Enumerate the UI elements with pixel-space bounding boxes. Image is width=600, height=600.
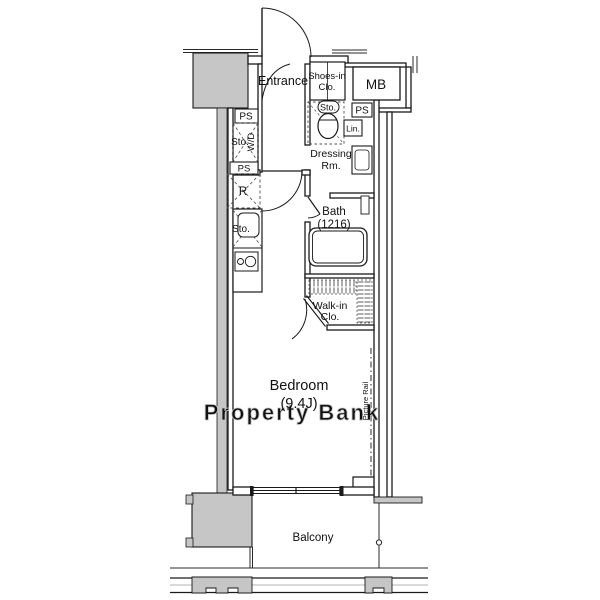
label-entrance: Entrance bbox=[258, 74, 308, 88]
hanger-pipe-top bbox=[309, 280, 356, 294]
label-picture-rail: Picture Rail bbox=[361, 382, 370, 421]
pillar-bump-2 bbox=[186, 538, 193, 547]
wall-hall-door-right bbox=[302, 170, 310, 175]
toilet-icon bbox=[318, 114, 338, 139]
label-walkin-2: Clo. bbox=[321, 311, 340, 323]
label-refrigerator: R bbox=[239, 186, 247, 198]
balcony-side-wall bbox=[374, 497, 422, 503]
structure-pillars bbox=[186, 53, 252, 547]
pillar-top-left bbox=[193, 53, 248, 108]
bath-door-arc bbox=[308, 214, 320, 218]
pillar-bottom-left bbox=[192, 493, 252, 547]
hall-door-arc bbox=[262, 171, 302, 211]
wall-entrance-left-jamb bbox=[248, 56, 262, 64]
wall-closet-bottom bbox=[327, 325, 374, 330]
stove-icon bbox=[235, 252, 258, 271]
bath-door-leaf bbox=[308, 197, 320, 214]
label-balcony: Balcony bbox=[293, 532, 334, 544]
label-linen: Lin. bbox=[346, 124, 360, 134]
pillar-bump-1 bbox=[186, 495, 193, 504]
label-ps-right: PS bbox=[355, 106, 369, 117]
wall-bedroom-notch bbox=[353, 477, 374, 487]
wall-bath-closet bbox=[305, 274, 374, 278]
railing-block-right bbox=[365, 577, 392, 593]
label-ps-mid-left: PS bbox=[238, 164, 251, 175]
label-ps-top-left: PS bbox=[239, 112, 253, 123]
shaft-wall-left bbox=[217, 108, 227, 493]
label-dressing-2: Rm. bbox=[321, 160, 340, 172]
label-storage-kitchen: Sto. bbox=[232, 224, 250, 235]
bathtub-icon bbox=[309, 228, 367, 266]
label-bedroom-1: Bedroom bbox=[270, 378, 329, 394]
label-bath-1: Bath bbox=[322, 206, 346, 218]
balcony-window bbox=[250, 486, 344, 496]
doors bbox=[262, 8, 320, 218]
label-shoes-in-2: Clo. bbox=[319, 82, 336, 93]
label-shoes-in-1: Shoes-in bbox=[308, 71, 346, 82]
kitchen bbox=[233, 209, 262, 292]
wall-right-mb bbox=[406, 67, 411, 108]
wall-bedroom-bottom-right bbox=[340, 487, 374, 495]
floorplan-drawing: Property Bank Entrance Shoes-in Clo. MB … bbox=[0, 0, 600, 600]
bath-counter bbox=[361, 196, 369, 214]
wall-right-outer bbox=[387, 112, 392, 497]
label-storage-toilet: Sto. bbox=[320, 103, 336, 113]
label-bedroom-2: (9.4J) bbox=[280, 396, 317, 412]
label-bath-2: (1216) bbox=[317, 219, 350, 231]
label-meter-box: MB bbox=[366, 77, 386, 92]
railing-block-left bbox=[192, 577, 252, 593]
floorplan-image: Property Bank Entrance Shoes-in Clo. MB … bbox=[0, 0, 600, 600]
hanger-pipe-right bbox=[357, 280, 372, 323]
wall-right-inner bbox=[374, 100, 379, 497]
label-dressing-1: Dressing bbox=[310, 148, 352, 160]
label-washer-dryer: W/D bbox=[246, 133, 257, 152]
entrance-door-arc bbox=[262, 8, 311, 57]
wall-step-right bbox=[379, 108, 411, 112]
